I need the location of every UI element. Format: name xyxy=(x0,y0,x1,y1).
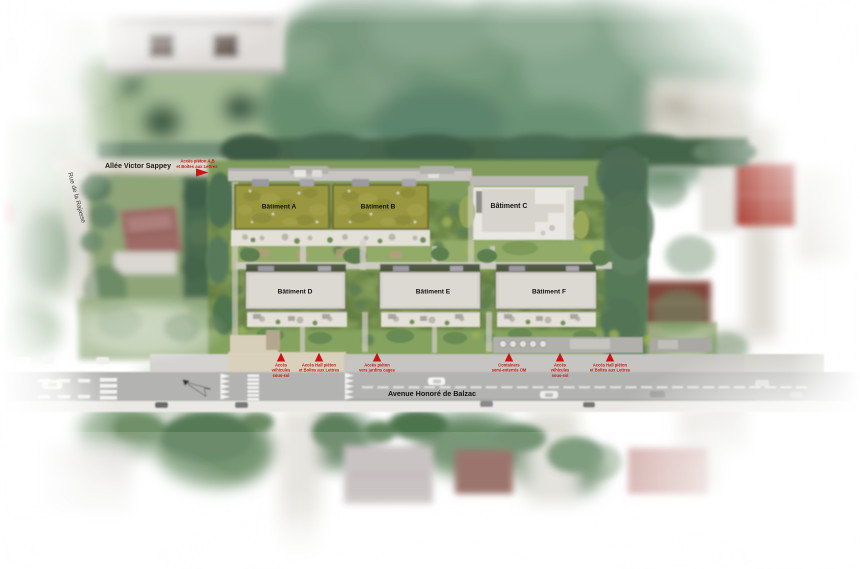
svg-text:sous-sol: sous-sol xyxy=(273,373,290,378)
svg-text:Bâtiment A: Bâtiment A xyxy=(262,204,297,211)
svg-text:Bâtiment C: Bâtiment C xyxy=(491,203,528,210)
svg-text:Bâtiment D: Bâtiment D xyxy=(278,289,313,296)
svg-text:Bâtiment B: Bâtiment B xyxy=(361,204,396,211)
svg-text:Bâtiment E: Bâtiment E xyxy=(416,289,451,296)
svg-text:Avenue Honoré de Balzac: Avenue Honoré de Balzac xyxy=(388,389,476,398)
svg-text:vers jardins cages: vers jardins cages xyxy=(359,368,395,373)
svg-text:semi-enterrés OM: semi-enterrés OM xyxy=(492,368,527,373)
svg-text:et Boîtes aux Lettres: et Boîtes aux Lettres xyxy=(299,368,340,373)
svg-text:sous-sol: sous-sol xyxy=(552,373,569,378)
svg-text:Bâtiment F: Bâtiment F xyxy=(532,289,566,296)
svg-text:et Boîtes aux Lettres: et Boîtes aux Lettres xyxy=(176,164,218,169)
svg-text:et Boîtes aux Lettres: et Boîtes aux Lettres xyxy=(590,368,631,373)
svg-text:Allée Victor Sappey: Allée Victor Sappey xyxy=(105,162,171,170)
svg-text:Accès piéton A,B: Accès piéton A,B xyxy=(180,159,214,164)
